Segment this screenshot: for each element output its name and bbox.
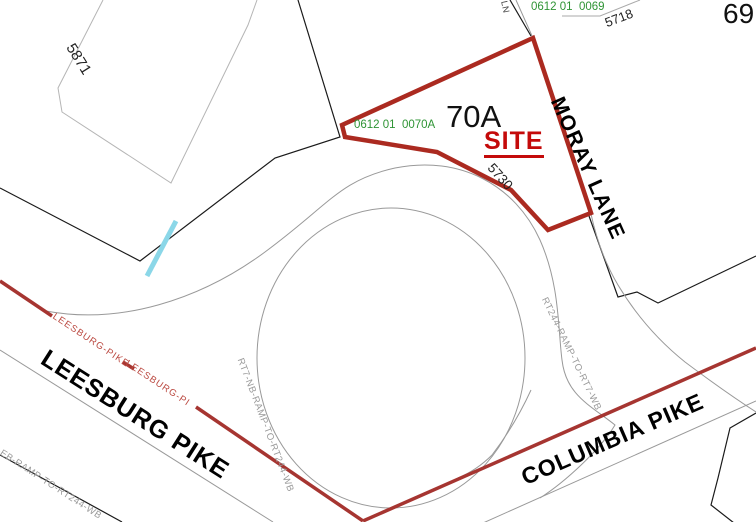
parcel-id-0069: 0612 01 0069 bbox=[531, 2, 605, 14]
leesburg-pike-centerline-1 bbox=[0, 281, 52, 316]
boundary-line-southeast bbox=[711, 413, 756, 522]
columbia-pike-south-edge bbox=[483, 401, 756, 522]
boundary-line-northwest bbox=[0, 0, 340, 261]
stream-mark bbox=[147, 221, 176, 276]
cutoff-street-name: LN bbox=[499, 0, 510, 14]
boundary-line-top bbox=[510, 0, 531, 36]
tax-map-canvas: 5871 0612 01 0069 5718 69 LN 0612 01 007… bbox=[0, 0, 756, 522]
parcel-label-69: 69 bbox=[723, 0, 754, 28]
cloverleaf-loop-inner-curve bbox=[257, 208, 525, 508]
site-label: SITE bbox=[484, 129, 544, 158]
site-parcel-outline bbox=[342, 38, 591, 230]
map-linework bbox=[0, 0, 756, 522]
columbia-pike-centerline bbox=[363, 348, 756, 521]
moray-to-columbia-road-edge bbox=[591, 214, 756, 412]
parcel-5871-outline bbox=[58, 0, 257, 183]
parcel-id-0070a: 0612 01 0070A bbox=[354, 120, 435, 132]
